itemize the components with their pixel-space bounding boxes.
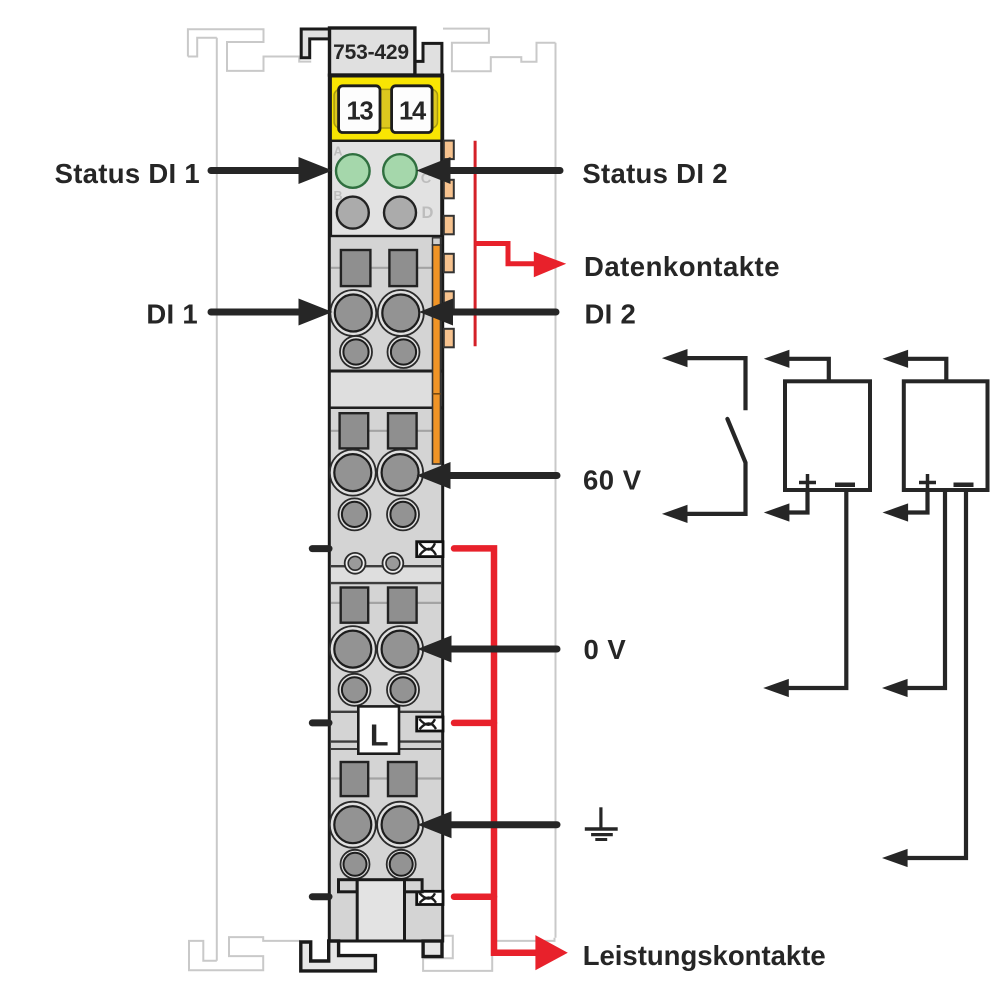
svg-text:L: L: [370, 719, 389, 753]
svg-text:DI 2: DI 2: [585, 299, 637, 330]
svg-text:D: D: [422, 204, 434, 222]
svg-text:60 V: 60 V: [583, 465, 642, 496]
svg-text:13: 13: [347, 98, 374, 126]
svg-text:Status DI 2: Status DI 2: [582, 158, 727, 189]
svg-text:14: 14: [399, 98, 427, 126]
svg-text:0 V: 0 V: [584, 634, 627, 665]
svg-text:Leistungskontakte: Leistungskontakte: [583, 940, 826, 971]
svg-text:753-429: 753-429: [333, 41, 409, 64]
svg-text:A: A: [333, 145, 342, 159]
svg-text:Datenkontakte: Datenkontakte: [584, 251, 780, 282]
svg-text:Status DI 1: Status DI 1: [55, 158, 200, 189]
svg-text:DI 1: DI 1: [146, 299, 198, 330]
